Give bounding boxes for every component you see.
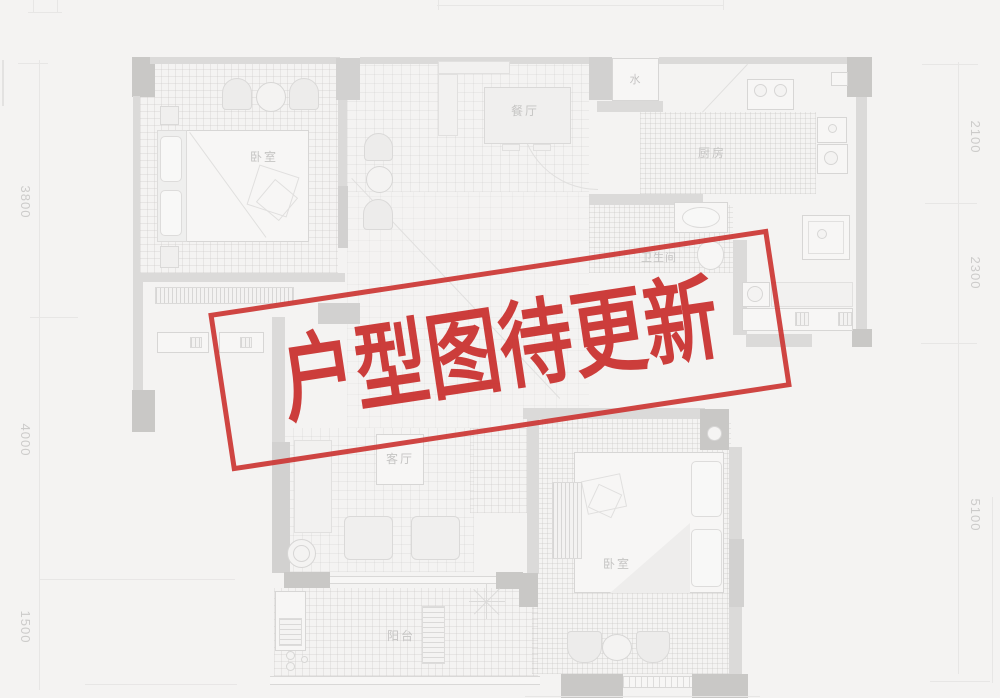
dimension-tick [723,0,724,10]
dimension-right-2300: 2300 [968,244,982,302]
shower-drain [817,229,827,239]
stool [256,82,286,112]
dining-chair [533,144,551,151]
laundry-counter [771,282,853,307]
wall [150,57,340,64]
chair [222,78,252,110]
nightstand [160,246,179,268]
shower-tray [808,221,844,254]
sideboard [438,61,510,74]
wall [597,101,663,112]
knob [301,656,308,663]
dimension-edge-mark [2,60,4,106]
dimension-tick [930,681,990,682]
pillow [691,529,722,587]
room-label-dining: 餐厅 [495,104,555,118]
dimension-tick [85,684,237,685]
dimension-line [958,62,959,674]
knob [286,662,295,671]
wall-block [692,674,748,698]
wall-block [561,674,623,698]
dimension-right-5100: 5100 [968,486,982,544]
stool [602,634,632,661]
pillow [691,461,722,517]
dimension-left-1500: 1500 [18,598,32,656]
room-label-balcony: 阳台 [371,629,431,643]
wall-block [589,57,612,100]
wall-block [519,573,538,607]
stove [747,79,794,110]
stool [366,166,393,193]
dimension-tick [925,203,977,204]
sofa [344,516,393,560]
dimension-tick [18,63,48,64]
dimension-line [437,5,723,6]
room-label-kitchen: 厨房 [682,146,742,160]
pillow [160,190,182,236]
cabinet-handle [795,312,809,326]
door-leaf [702,64,748,113]
wardrobe [552,482,582,559]
dimension-left-3800: 3800 [18,173,32,231]
dimension-tick [57,0,58,12]
wall-block [132,390,155,432]
wall [659,57,849,64]
dimension-tick [921,343,977,344]
floorplan-image: 卧室 餐厅 厨房 卫生间 客厅 阳台 卧室 水 3800 4000 1500 2… [0,0,1000,698]
screen [438,74,458,136]
dimension-right-2100: 2100 [968,108,982,166]
pillow [160,136,182,182]
plant [293,545,310,562]
room-label-bedroom2: 卧室 [587,557,647,571]
column-circle [707,426,722,441]
room-label-water: 水 [612,73,659,87]
burner [774,84,787,97]
cabinet-handle [838,312,852,326]
hallway-floor [470,428,530,513]
wall-block [852,329,872,347]
wall-block [336,58,360,100]
wall [856,97,867,329]
window [623,676,693,688]
wall-block [284,572,330,588]
wall [133,282,143,392]
chair [636,631,670,663]
sofa [411,516,460,560]
dimension-tick [40,579,235,580]
wall [133,273,345,282]
balcony-window [270,676,540,685]
dimension-line [992,497,993,683]
dimension-tick [28,12,62,13]
wall [729,539,744,607]
chair [289,78,319,110]
basin [682,207,720,228]
nightstand [160,106,179,125]
wall [133,96,140,292]
dining-chair [502,144,520,151]
faucet [828,124,837,133]
chair [363,199,393,230]
dimension-tick [33,0,34,12]
wardrobe [155,287,294,304]
wall [338,100,347,188]
room-label-living: 客厅 [370,452,430,466]
dimension-tick [525,696,760,697]
update-stamp-text: 户型图待更新 [275,271,724,430]
wall-block [847,57,872,97]
burner [754,84,767,97]
dimension-left-4000: 4000 [18,411,32,469]
knob [286,651,295,660]
drain [824,151,838,165]
counter-box [831,72,848,86]
dimension-line [39,60,40,690]
dimension-tick [922,64,978,65]
wall [527,419,539,574]
window [330,576,498,584]
dimension-tick [30,317,78,318]
chair [364,133,393,161]
cabinet-handle [190,337,202,348]
room-label-bedroom1: 卧室 [234,150,294,164]
wall [338,186,348,248]
cabinet-vents [279,618,302,646]
chair [567,631,602,663]
